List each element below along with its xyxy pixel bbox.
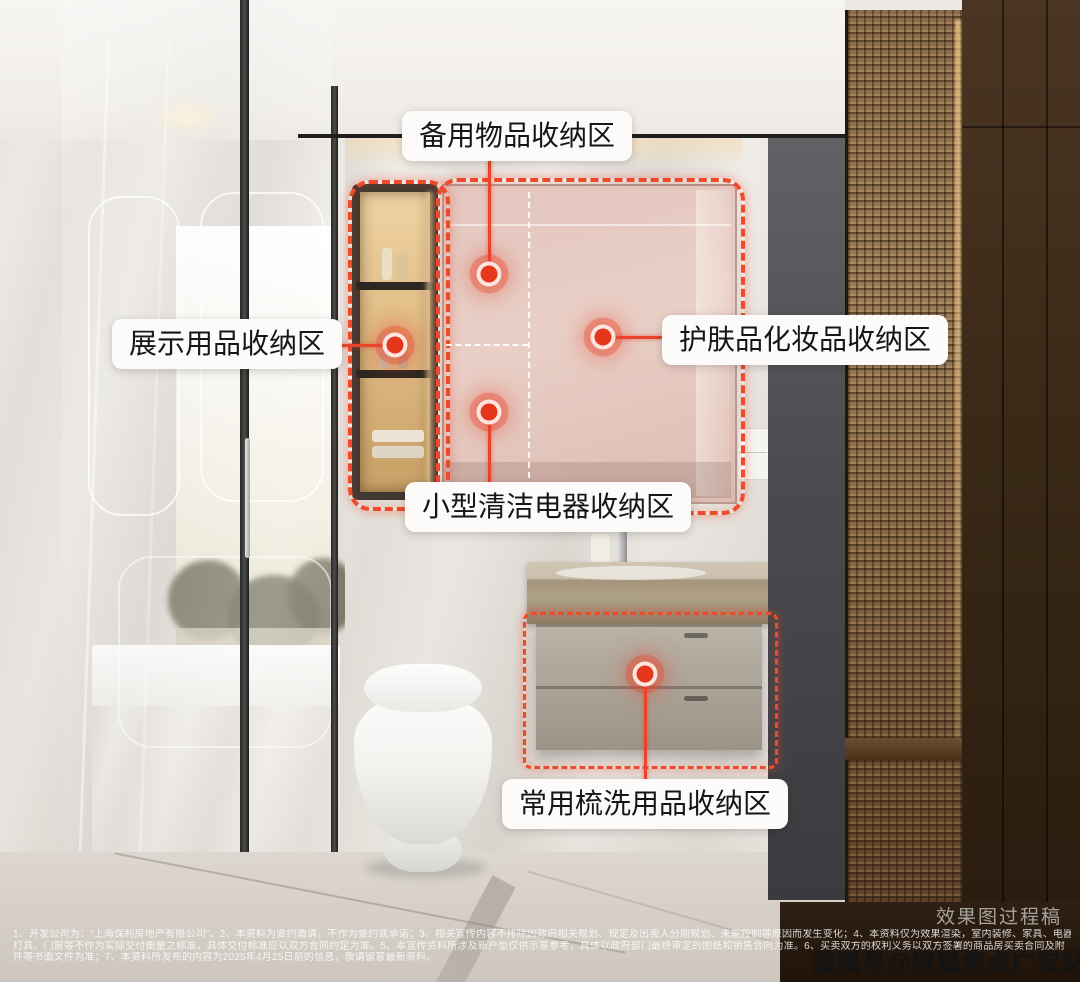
shower-door-handle	[245, 438, 250, 558]
marker-dot-spare-items	[477, 262, 502, 287]
zone-divider-horizontal	[446, 344, 528, 346]
callout-line-grooming	[644, 682, 647, 780]
wood-panel-seam	[1002, 0, 1004, 982]
callout-label-daily-grooming: 常用梳洗用品收纳区	[502, 779, 788, 829]
marker-dot-skincare	[591, 325, 616, 350]
wood-panel-seam	[1046, 0, 1048, 982]
wood-panel-seam	[962, 126, 1080, 128]
disclaimer-line-1: 1、开发公司为：“上海保利房地产有限公司”。2、本资料为要约邀请，不作为要约或承…	[13, 929, 1071, 941]
callout-line-skincare	[612, 336, 664, 339]
zone-divider-vertical	[528, 192, 530, 498]
marker-dot-cleaning	[477, 400, 502, 425]
shower-glass-frame-right	[331, 86, 338, 956]
callout-label-skincare-cosmetics: 护肤品化妆品收纳区	[662, 315, 948, 365]
bronze-mesh-screen	[845, 10, 969, 906]
storage-zone-outline-vanity	[523, 612, 778, 769]
callout-label-spare-items: 备用物品收纳区	[402, 111, 632, 161]
callout-line-cleaning	[488, 420, 491, 484]
draft-watermark: 效果图过程稿	[936, 902, 1062, 929]
marker-dot-grooming	[633, 662, 658, 687]
source-watermark: 搜狐号@搜狐焦点广安站	[812, 943, 1080, 978]
screen-rail	[845, 738, 963, 760]
callout-line-spare-items	[488, 160, 491, 266]
screen-edge-light	[955, 20, 961, 738]
callout-label-display-items: 展示用品收纳区	[112, 319, 342, 369]
bathroom-rendering: 备用物品收纳区 展示用品收纳区 护肤品化妆品收纳区 小型清洁电器收纳区 常用梳洗…	[0, 0, 1080, 982]
basin-highlight	[556, 566, 706, 580]
toilet-lid	[364, 664, 482, 712]
callout-label-small-cleaning-appliances: 小型清洁电器收纳区	[405, 482, 691, 532]
wood-panel-wall	[962, 0, 1080, 982]
marker-dot-display-items	[383, 333, 408, 358]
